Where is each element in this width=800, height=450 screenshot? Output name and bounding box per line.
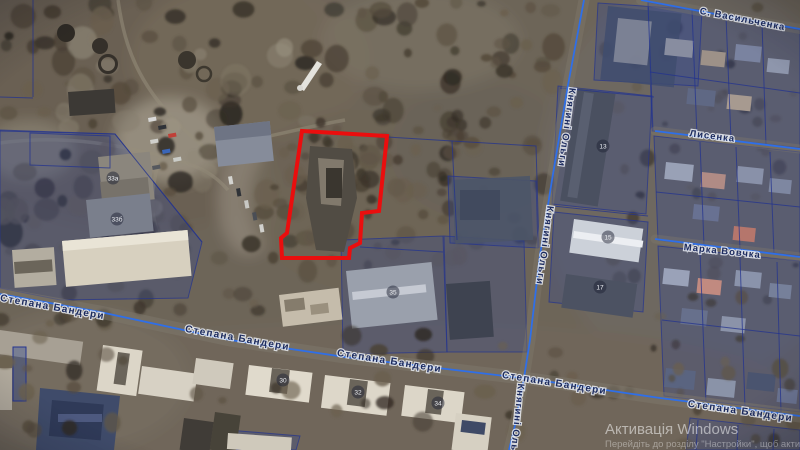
- map-viewport[interactable]: 1315173032343533а33б Степана Бандери Сте…: [0, 0, 800, 450]
- satellite-map[interactable]: 1315173032343533а33б Степана Бандери Сте…: [0, 0, 800, 450]
- vignette-overlay: [0, 0, 800, 450]
